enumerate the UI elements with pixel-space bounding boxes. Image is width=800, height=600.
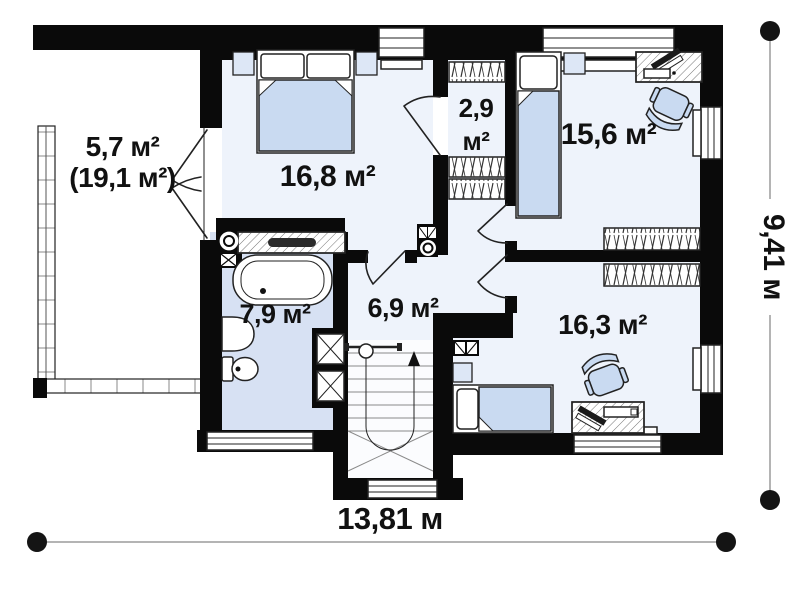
terrace-area: 5,7 м² <box>45 132 200 163</box>
double-bed-icon <box>257 50 354 153</box>
wall <box>33 378 47 398</box>
dimension-dot <box>760 21 780 41</box>
wardrobe-area-unit: м² <box>441 125 511 158</box>
wall <box>433 155 448 255</box>
wall <box>33 25 205 50</box>
wall <box>200 240 222 452</box>
terrace-area-total: (19,1 м²) <box>45 163 200 194</box>
wall <box>200 25 222 128</box>
window <box>379 28 424 69</box>
handrail-end <box>397 343 402 351</box>
bedroom3-area-label: 16,3 м² <box>505 310 700 341</box>
wall <box>348 250 368 263</box>
single-bed-icon <box>453 385 553 433</box>
wall <box>433 313 453 500</box>
desk-icon <box>636 48 702 82</box>
wardrobe-area-value: 2,9 <box>441 92 511 125</box>
railing <box>45 379 203 393</box>
nightstand-icon <box>233 52 254 75</box>
vanity-counter <box>238 232 345 253</box>
hallway-area-label: 6,9 м² <box>342 294 464 324</box>
wardrobe-area-label: 2,9 м² <box>441 92 511 157</box>
stairwell-floor <box>348 340 433 478</box>
dimension-dot <box>716 532 736 552</box>
window <box>207 432 313 450</box>
nightstand-icon <box>356 52 377 75</box>
dimension-dot <box>27 532 47 552</box>
wall <box>222 218 345 232</box>
floor-plan: 5,7 м² (19,1 м²) 16,8 м² 2,9 м² 15,6 м² … <box>0 0 800 600</box>
toilet-icon <box>222 357 258 381</box>
bedroom-area-label: 16,8 м² <box>222 160 433 193</box>
nightstand-icon <box>564 53 585 74</box>
terrace-floor <box>45 50 200 380</box>
sink-basin-icon <box>268 238 316 247</box>
window <box>693 345 721 393</box>
bedroom2-area-label: 15,6 м² <box>517 118 700 151</box>
wall <box>505 250 700 262</box>
terrace-area-label: 5,7 м² (19,1 м²) <box>45 132 200 194</box>
nightstand-icon <box>453 363 472 382</box>
wall <box>405 250 417 263</box>
bathtub-icon <box>233 255 332 305</box>
newel-post-icon <box>359 344 373 358</box>
dimension-dot <box>760 490 780 510</box>
width-dimension-label: 13,81 м <box>290 502 490 536</box>
height-dimension-label: 9,41 м <box>750 199 790 315</box>
desk-icon <box>572 402 644 433</box>
bathroom-area-label: 7,9 м² <box>212 300 338 330</box>
window <box>368 480 437 498</box>
